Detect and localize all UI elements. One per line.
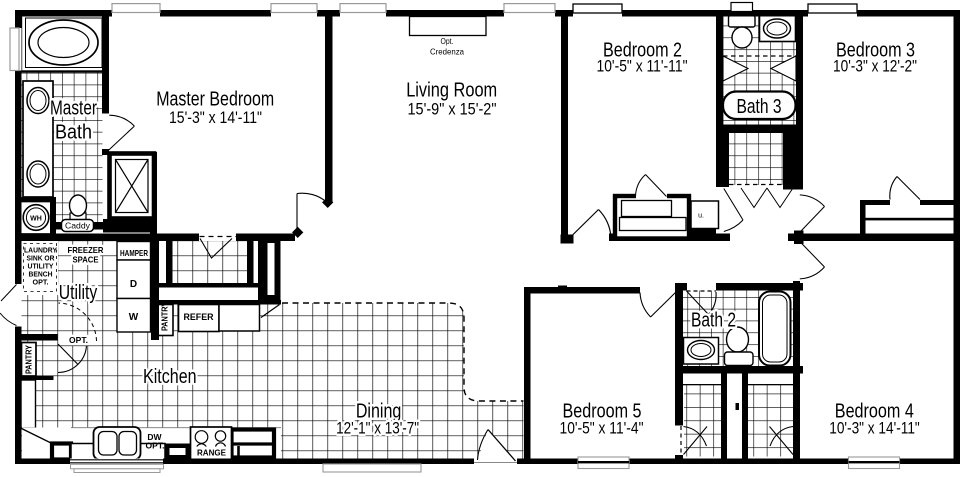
svg-text:Bath 2: Bath 2 <box>691 309 736 332</box>
svg-text:10'-5" x 11'-4": 10'-5" x 11'-4" <box>560 419 644 438</box>
svg-text:Kitchen: Kitchen <box>143 365 197 388</box>
svg-text:OPT.: OPT. <box>33 280 49 287</box>
svg-text:D: D <box>130 279 137 290</box>
svg-text:PANTRY: PANTRY <box>160 302 170 331</box>
svg-text:FREEZER: FREEZER <box>68 245 104 255</box>
svg-text:LAUNDRY: LAUNDRY <box>24 248 57 255</box>
svg-text:REFER: REFER <box>184 312 214 323</box>
svg-text:PANTRY: PANTRY <box>24 345 34 374</box>
svg-text:SPACE: SPACE <box>73 255 99 265</box>
svg-text:RANGE: RANGE <box>197 448 226 458</box>
svg-text:Credenza: Credenza <box>430 47 464 57</box>
svg-text:Bath 3: Bath 3 <box>737 95 782 118</box>
svg-text:WH: WH <box>30 216 42 223</box>
svg-text:HAMPER: HAMPER <box>120 248 148 258</box>
svg-text:OPT.: OPT. <box>69 335 88 345</box>
svg-text:12'-1" x 13'-7": 12'-1" x 13'-7" <box>336 419 419 438</box>
svg-text:OPT.: OPT. <box>146 441 165 451</box>
svg-text:Living Room: Living Room <box>406 79 497 102</box>
svg-text:Master: Master <box>50 97 97 120</box>
svg-text:Opt.: Opt. <box>441 36 454 46</box>
svg-text:BENCH: BENCH <box>29 272 53 279</box>
svg-text:10'-5" x 11'-11": 10'-5" x 11'-11" <box>597 57 688 76</box>
svg-text:10'-3" x 14'-11": 10'-3" x 14'-11" <box>829 419 920 438</box>
svg-text:SINK OR: SINK OR <box>27 256 55 263</box>
svg-text:10'-3" x 12'-2": 10'-3" x 12'-2" <box>833 57 917 76</box>
svg-text:Caddy: Caddy <box>65 221 91 231</box>
svg-text:Bath: Bath <box>55 121 92 144</box>
svg-text:15'-3" x 14'-11": 15'-3" x 14'-11" <box>169 108 262 127</box>
svg-text:Utility: Utility <box>59 281 98 304</box>
svg-text:W: W <box>129 312 139 323</box>
svg-text:u.: u. <box>698 213 704 220</box>
svg-text:UTILITY: UTILITY <box>28 264 54 271</box>
svg-text:15'-9" x 15'-2": 15'-9" x 15'-2" <box>408 100 497 119</box>
